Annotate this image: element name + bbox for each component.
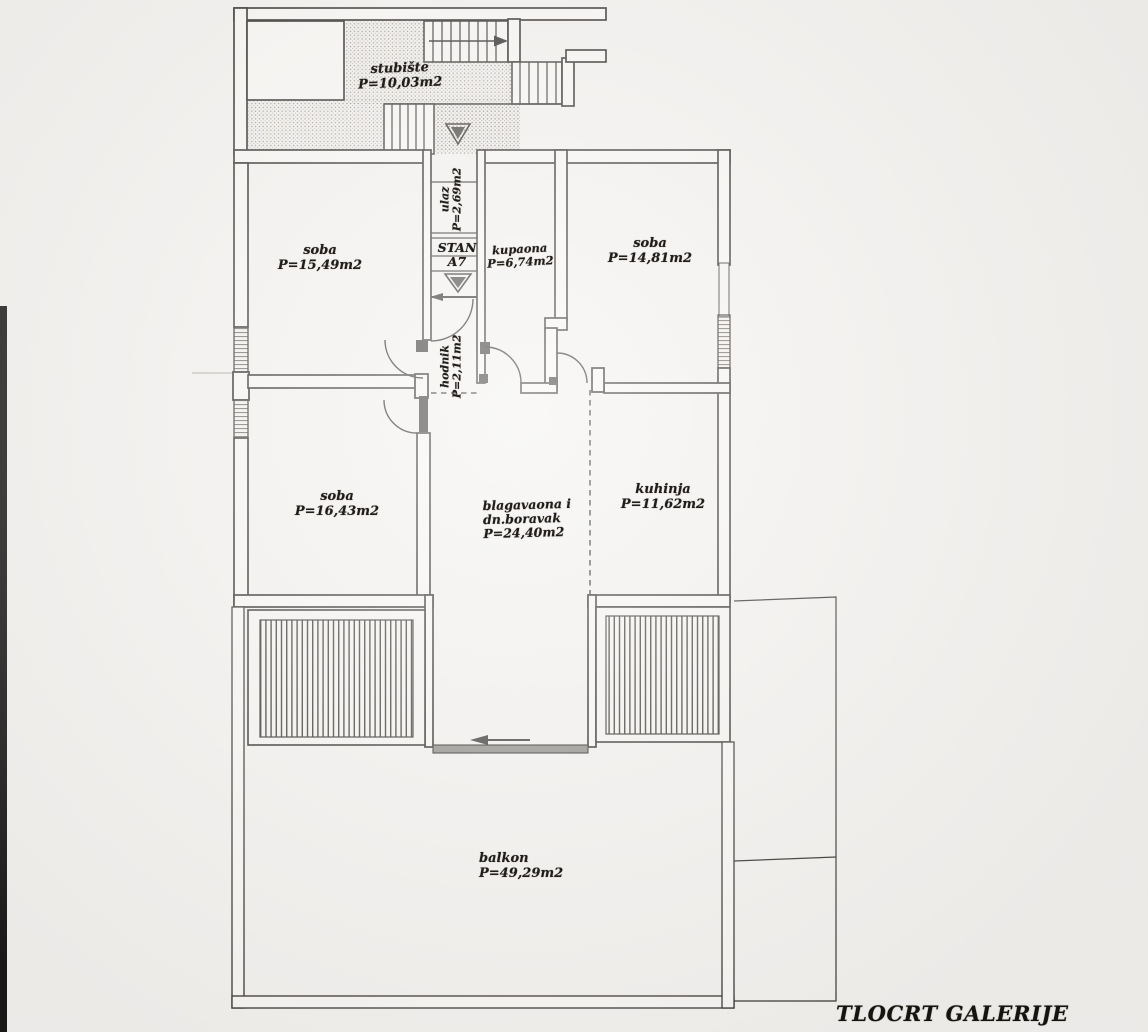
side-extension-outline: [734, 597, 836, 1001]
room-name: soba: [605, 237, 695, 252]
room-area: P=15,49m2: [275, 259, 365, 274]
room-label-kupaona: kupaona P=6,74m2: [474, 241, 565, 272]
room-label-kuhinja: kuhinja P=11,62m2: [618, 483, 708, 512]
sliding-door-arrow: [470, 735, 488, 745]
room-area: P=14,81m2: [605, 252, 695, 267]
room-area: P=49,29m2: [479, 867, 563, 882]
open-plan-separators: [431, 390, 590, 597]
room-label-blagavaona: blagavaona i dn.boravak P=24,40m2: [482, 497, 572, 542]
stair-flight-right: [512, 62, 562, 104]
stair-flight-upper: [424, 21, 508, 62]
room-name: balkon: [479, 852, 563, 867]
room-area: P=24,40m2: [483, 525, 572, 541]
terrace-bands: [248, 607, 730, 753]
unit-number: A7: [433, 255, 481, 269]
room-area: P=11,62m2: [618, 498, 708, 513]
room-label-stubiste: stubište P=10,03m2: [355, 60, 446, 92]
room-label-ulaz: ulaz P=2,69m2: [408, 154, 496, 244]
hatched-band-right: [606, 616, 719, 734]
window-left-lower: [234, 400, 248, 438]
room-label-soba-gornja: soba P=15,49m2: [275, 244, 365, 273]
room-area: P=2,69m2: [452, 167, 464, 231]
wall-left-stair: [234, 8, 247, 155]
stair-flight-down: [384, 104, 434, 154]
room-area: P=16,43m2: [292, 505, 382, 520]
room-label-balkon: balkon P=49,29m2: [479, 852, 563, 881]
floorplan-page: stubište P=10,03m2 soba P=15,49m2 ulaz P…: [0, 0, 1148, 1032]
entry-marker-triangle: [445, 274, 471, 292]
window-left-upper: [234, 327, 248, 372]
door-arc-soba-right: [557, 353, 587, 383]
sliding-door: [433, 735, 588, 753]
room-name: soba: [292, 490, 382, 505]
room-area: P=10,03m2: [355, 75, 445, 93]
stair-landing-room: [247, 21, 344, 100]
floorplan-drawing: [0, 0, 1148, 1032]
wall-top-outer: [234, 8, 606, 20]
room-label-soba-desna: soba P=14,81m2: [605, 237, 695, 266]
room-label-hodnik: hodnik P=2,11m2: [408, 321, 496, 411]
room-area: P=2,11m2: [452, 334, 464, 398]
plan-title: TLOCRT GALERIJE: [836, 1001, 1069, 1026]
room-label-soba-lijeva: soba P=16,43m2: [292, 490, 382, 519]
room-name: kuhinja: [618, 483, 708, 498]
scan-artifacts: [0, 306, 236, 1032]
room-name: soba: [275, 244, 365, 259]
window-right: [719, 263, 729, 317]
hatched-band-left: [260, 620, 413, 737]
door-swing-arrow: [430, 293, 443, 301]
